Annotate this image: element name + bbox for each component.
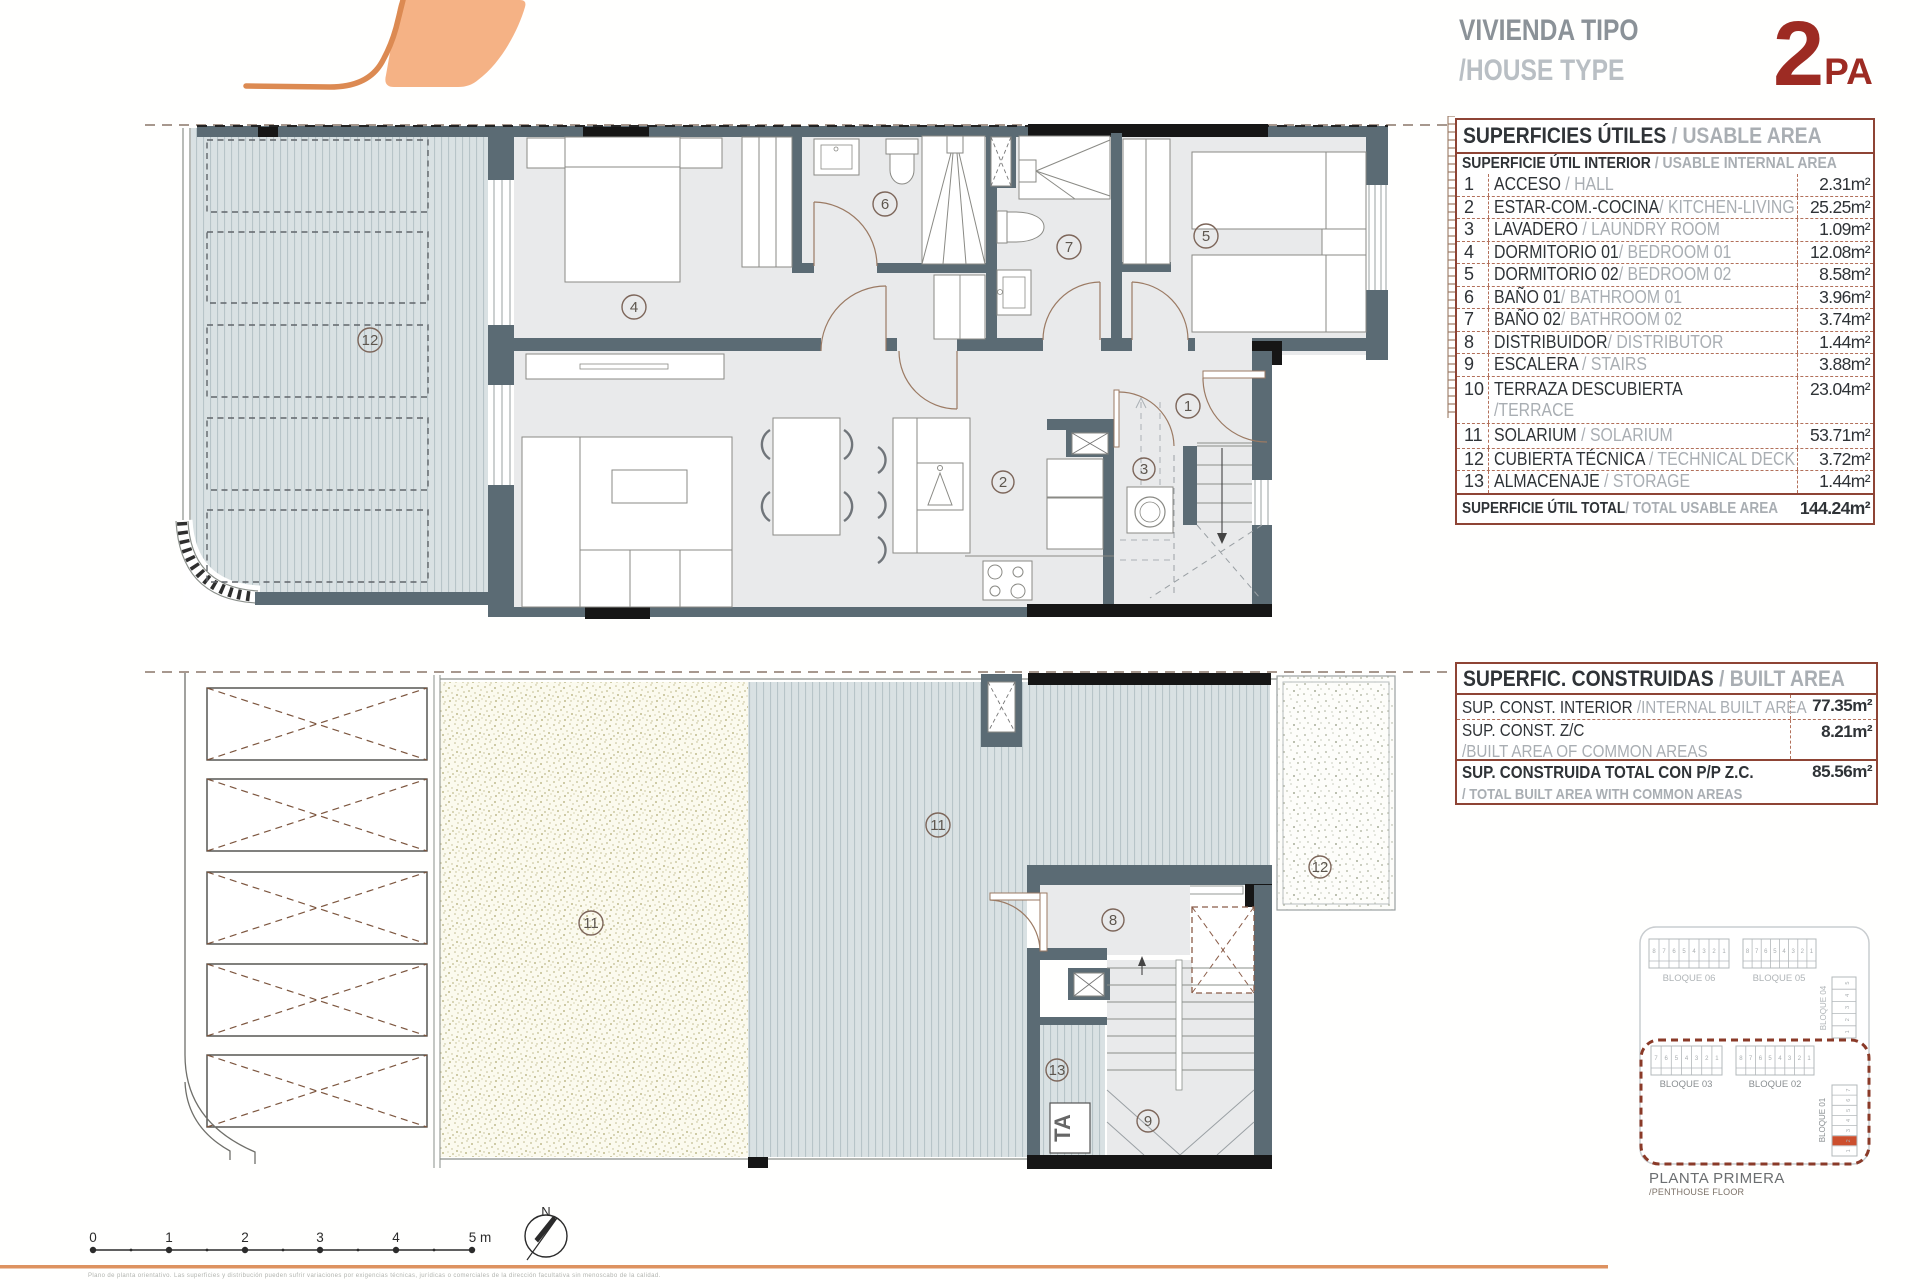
svg-text:BLOQUE 01: BLOQUE 01 xyxy=(1818,1097,1827,1142)
svg-text:3: 3 xyxy=(316,1230,324,1245)
svg-text:11: 11 xyxy=(930,817,946,834)
svg-text:2: 2 xyxy=(999,474,1007,491)
svg-text:7: 7 xyxy=(1846,1089,1852,1092)
svg-text:TA: TA xyxy=(1050,1114,1075,1142)
svg-text:7: 7 xyxy=(1065,239,1073,256)
svg-text:2: 2 xyxy=(1845,1018,1851,1021)
svg-text:11: 11 xyxy=(583,915,599,932)
svg-text:4: 4 xyxy=(1846,1119,1852,1122)
svg-text:8: 8 xyxy=(1109,912,1117,929)
svg-text:BLOQUE 06: BLOQUE 06 xyxy=(1663,973,1716,984)
svg-text:12: 12 xyxy=(1312,859,1329,876)
svg-text:5 m: 5 m xyxy=(469,1230,492,1245)
svg-text:12: 12 xyxy=(362,332,379,349)
svg-text:6: 6 xyxy=(1846,1099,1852,1102)
svg-text:0: 0 xyxy=(89,1230,97,1245)
svg-text:4: 4 xyxy=(630,299,638,316)
svg-text:3: 3 xyxy=(1845,1006,1851,1009)
svg-text:1: 1 xyxy=(1845,1030,1851,1033)
svg-text:3: 3 xyxy=(1140,461,1148,478)
svg-text:BLOQUE 02: BLOQUE 02 xyxy=(1749,1079,1802,1090)
svg-text:2: 2 xyxy=(241,1230,249,1245)
svg-text:BLOQUE 05: BLOQUE 05 xyxy=(1753,973,1806,984)
svg-text:5: 5 xyxy=(1846,1109,1852,1112)
svg-text:5: 5 xyxy=(1202,228,1210,245)
svg-text:13: 13 xyxy=(1049,1062,1066,1079)
svg-text:4: 4 xyxy=(1845,994,1851,997)
svg-text:1: 1 xyxy=(1846,1149,1852,1152)
svg-text:5: 5 xyxy=(1845,982,1851,985)
svg-text:N: N xyxy=(541,1204,550,1219)
svg-text:3: 3 xyxy=(1846,1129,1852,1132)
svg-text:4: 4 xyxy=(392,1230,400,1245)
svg-text:BLOQUE 03: BLOQUE 03 xyxy=(1660,1079,1713,1090)
svg-text:2: 2 xyxy=(1846,1139,1852,1142)
svg-text:1: 1 xyxy=(1184,398,1192,415)
svg-text:9: 9 xyxy=(1144,1113,1152,1130)
svg-text:BLOQUE 04: BLOQUE 04 xyxy=(1819,985,1828,1030)
svg-text:1: 1 xyxy=(165,1230,173,1245)
svg-text:6: 6 xyxy=(881,196,889,213)
